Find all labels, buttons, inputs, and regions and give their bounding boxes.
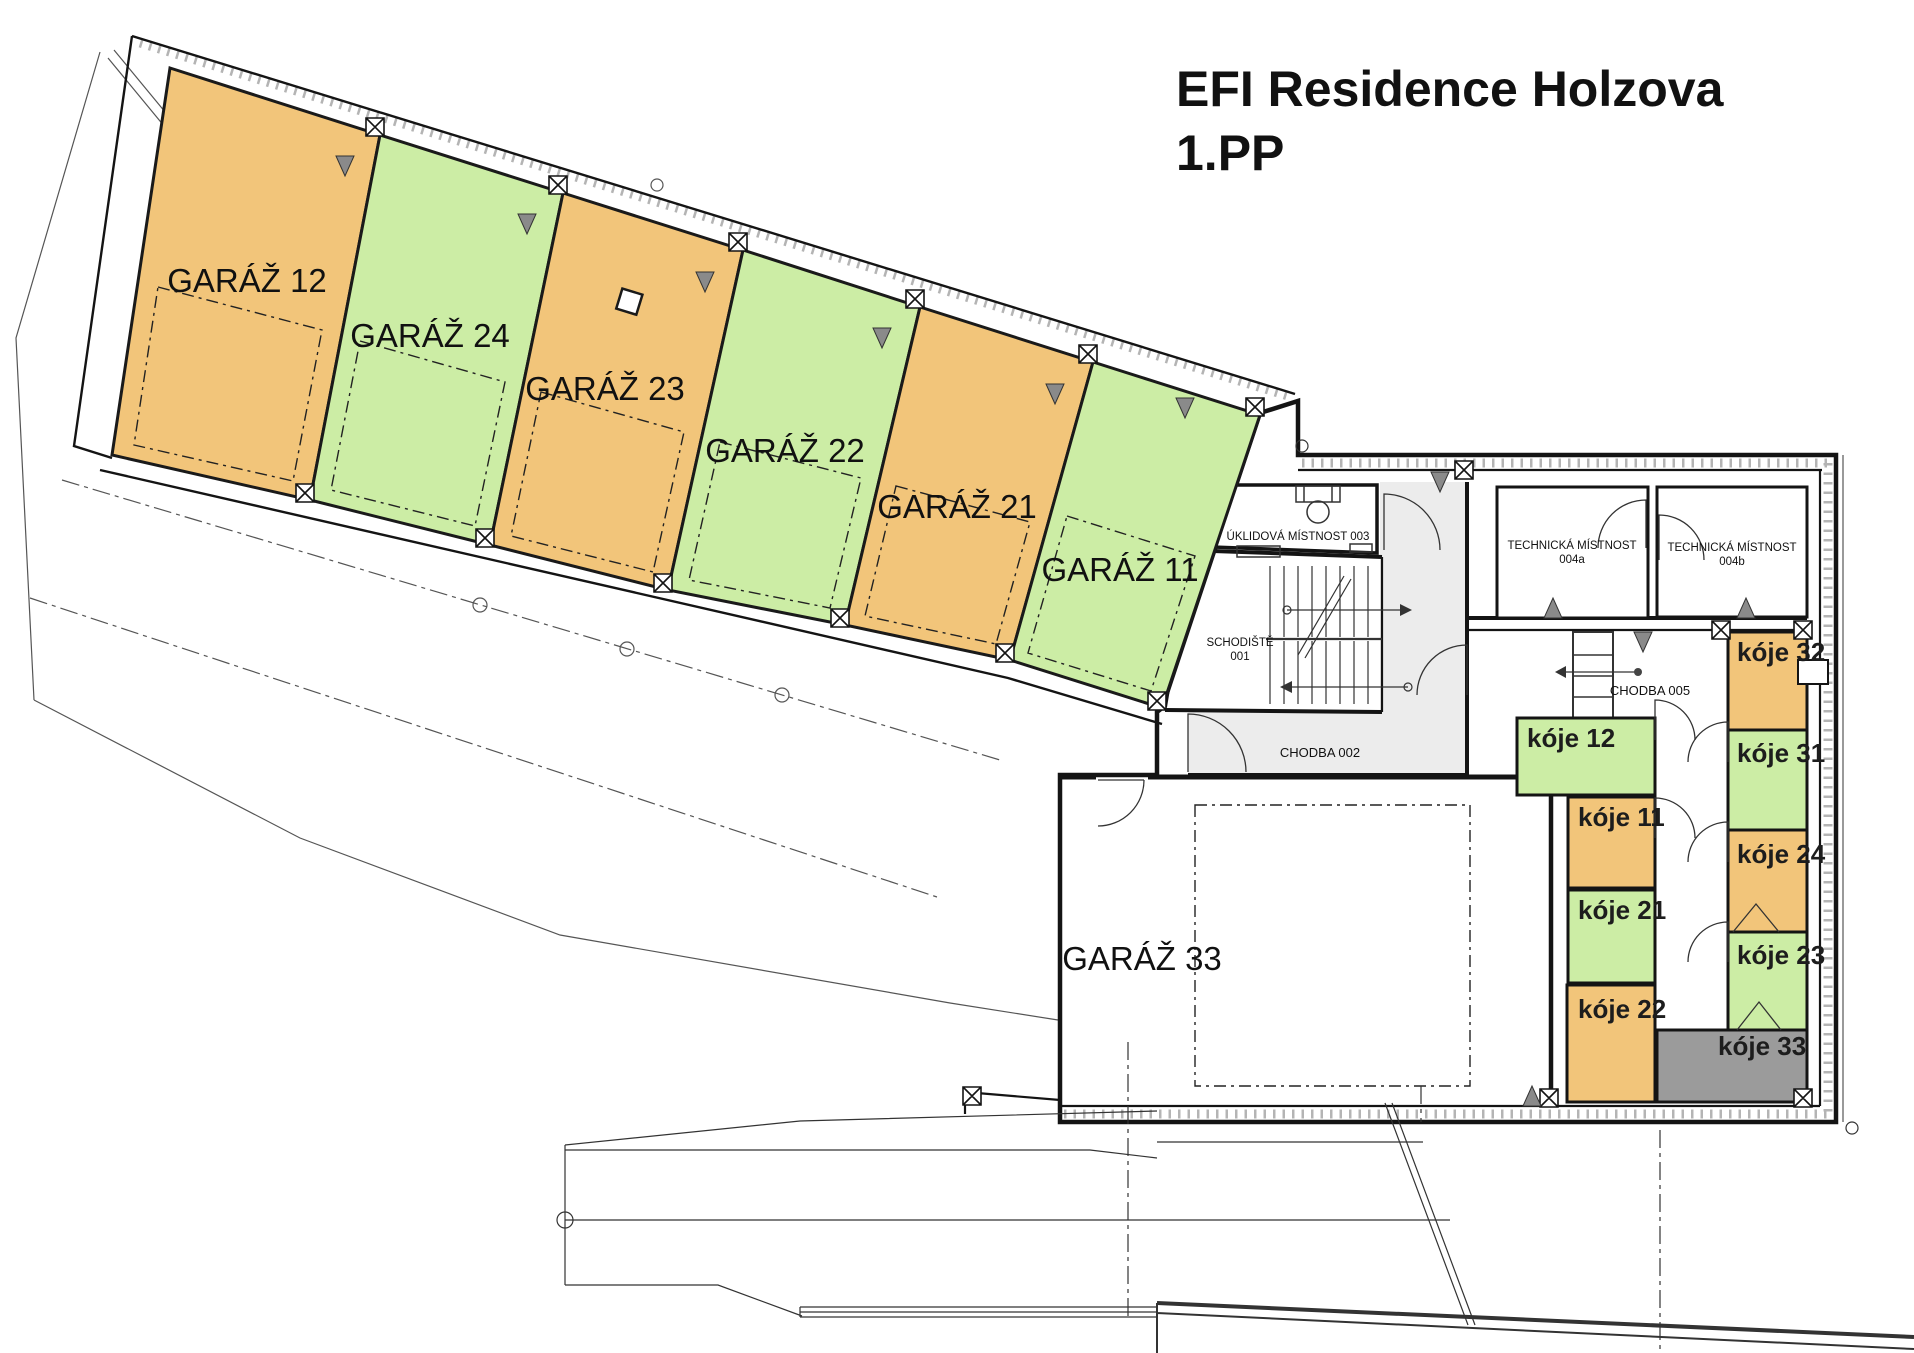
koje-32-label: kóje 32 [1737,637,1825,667]
floorplan-drawing: GARÁŽ 12 GARÁŽ 24 GARÁŽ 23 GARÁŽ 22 GARÁ… [0,0,1914,1353]
site-dashdot-2 [30,598,940,898]
koje-21-label: kóje 21 [1578,895,1666,925]
garage-24-label: GARÁŽ 24 [350,317,510,354]
site-wall-bottom-right-2 [1157,1303,1914,1353]
column-garage-23 [616,289,642,315]
koje-12-label: kóje 12 [1527,723,1615,753]
room-technicka-mistnost-004a [1497,487,1648,618]
title-block: EFI Residence Holzova 1.PP [1176,61,1725,181]
chodba-002-label: CHODBA 002 [1280,745,1360,760]
koje-22-label: kóje 22 [1578,994,1666,1024]
koje-11-label: kóje 11 [1578,802,1665,832]
floorplan-page: GARÁŽ 12 GARÁŽ 24 GARÁŽ 23 GARÁŽ 22 GARÁ… [0,0,1914,1353]
ramp-top-edge [565,1150,1157,1158]
page-subtitle: 1.PP [1176,125,1284,181]
room-003-label: ÚKLIDOVÁ MÍSTNOST 003 [1227,530,1370,543]
garage-33-label: GARÁŽ 33 [1062,940,1222,977]
page-title: EFI Residence Holzova [1176,61,1725,117]
garage-11-label: GARÁŽ 11 [1041,551,1198,588]
site-marker-circle-4 [651,179,663,191]
garage-12-label: GARÁŽ 12 [167,262,327,299]
marker-circle-se [1846,1122,1858,1134]
ramp-diagonal [1385,1103,1475,1325]
koje-33-label: kóje 33 [1718,1031,1806,1061]
ramp-curb-lines [800,1307,1157,1317]
site-line-bottom [34,700,1058,1020]
garage-22-label: GARÁŽ 22 [705,432,865,469]
chodba-005-label: CHODBA 005 [1610,683,1690,698]
garage-units [112,68,1260,708]
ramp-bottom-edge [565,1285,802,1316]
garage-23-label: GARÁŽ 23 [525,370,685,407]
koje-23-label: kóje 23 [1737,940,1825,970]
koje-24-label: kóje 24 [1737,839,1826,869]
garage-21-label: GARÁŽ 21 [877,488,1037,525]
site-marker-circle-1 [473,598,487,612]
koje-31-label: kóje 31 [1737,738,1825,768]
site-line-left [16,52,100,700]
